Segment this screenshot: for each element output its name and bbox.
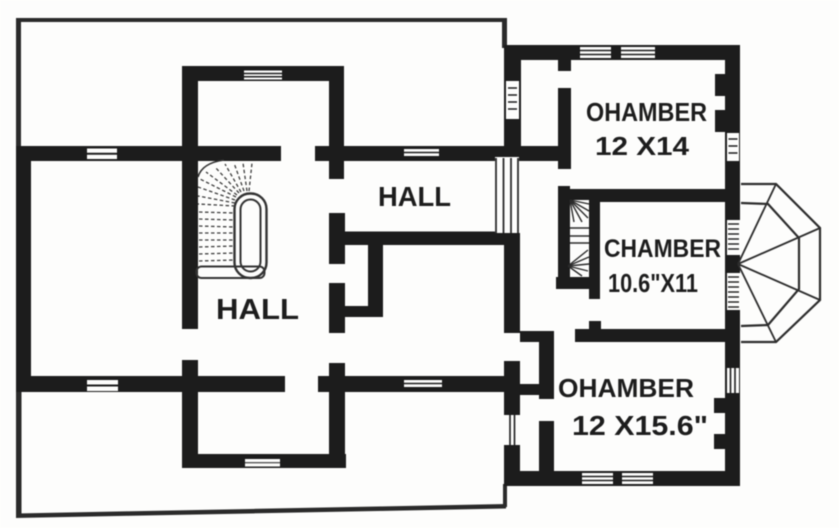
svg-text:HALL: HALL <box>378 181 451 212</box>
svg-text:12 X15.6": 12 X15.6" <box>572 410 708 441</box>
svg-text:CHAMBER: CHAMBER <box>604 235 721 263</box>
svg-text:OHAMBER: OHAMBER <box>558 373 694 403</box>
svg-text:OHAMBER: OHAMBER <box>586 97 707 127</box>
svg-text:10.6"X11: 10.6"X11 <box>608 268 698 298</box>
svg-text:12 X14: 12 X14 <box>595 131 690 161</box>
svg-text:HALL: HALL <box>216 294 299 326</box>
